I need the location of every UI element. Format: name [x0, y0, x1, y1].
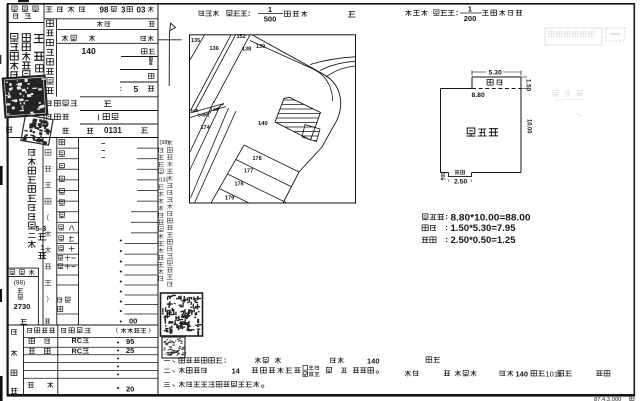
- svg-text:0131: 0131: [157, 178, 168, 184]
- svg-text:03: 03: [137, 6, 146, 15]
- svg-text:176: 176: [235, 182, 244, 188]
- svg-text:8.80: 8.80: [472, 92, 485, 99]
- svg-text:1: 1: [268, 5, 272, 14]
- svg-text:10.00: 10.00: [526, 119, 533, 134]
- svg-text:140: 140: [82, 46, 96, 56]
- svg-text:87.4.3.000: 87.4.3.000: [594, 397, 621, 401]
- svg-text:135: 135: [191, 38, 200, 44]
- svg-text:0131: 0131: [104, 126, 122, 135]
- svg-text:138: 138: [242, 47, 251, 53]
- svg-text:RC: RC: [72, 336, 82, 345]
- svg-text:177: 177: [244, 169, 253, 175]
- svg-text:00: 00: [129, 317, 137, 326]
- svg-text:50: 50: [439, 172, 445, 178]
- svg-text:148: 148: [210, 107, 218, 113]
- svg-text:8.80*10.00=88.00: 8.80*10.00=88.00: [451, 212, 531, 222]
- svg-text:2.50: 2.50: [454, 179, 467, 186]
- svg-text:140: 140: [258, 121, 268, 127]
- svg-text:136: 136: [210, 46, 219, 52]
- svg-text:14: 14: [232, 367, 241, 376]
- svg-text:140: 140: [367, 357, 380, 366]
- svg-text:1.50*5.30=7.95: 1.50*5.30=7.95: [451, 223, 516, 233]
- svg-text:(98): (98): [160, 140, 170, 146]
- svg-text:1.50: 1.50: [525, 79, 532, 92]
- svg-text:95: 95: [126, 337, 134, 346]
- svg-text:25: 25: [126, 346, 134, 355]
- svg-text:179: 179: [225, 196, 234, 202]
- svg-text:200: 200: [464, 14, 477, 23]
- svg-text:152: 152: [237, 34, 246, 40]
- svg-text:5-3: 5-3: [36, 224, 47, 233]
- svg-text:(98): (98): [14, 280, 26, 287]
- svg-text:2.50*0.50=1.25: 2.50*0.50=1.25: [451, 235, 516, 245]
- svg-text:140: 140: [516, 370, 529, 379]
- svg-text:1: 1: [468, 5, 472, 14]
- svg-text:2730: 2730: [14, 302, 31, 311]
- svg-text:178: 178: [253, 156, 262, 162]
- svg-text:5: 5: [134, 84, 139, 94]
- svg-text:174: 174: [201, 125, 211, 131]
- svg-text:5.30: 5.30: [489, 69, 502, 76]
- svg-text:500: 500: [264, 14, 277, 23]
- svg-text:RC: RC: [72, 346, 82, 355]
- svg-text:148-1: 148-1: [198, 113, 211, 119]
- svg-text:3: 3: [121, 6, 126, 15]
- svg-text:20: 20: [126, 385, 134, 394]
- svg-text:98: 98: [100, 6, 109, 15]
